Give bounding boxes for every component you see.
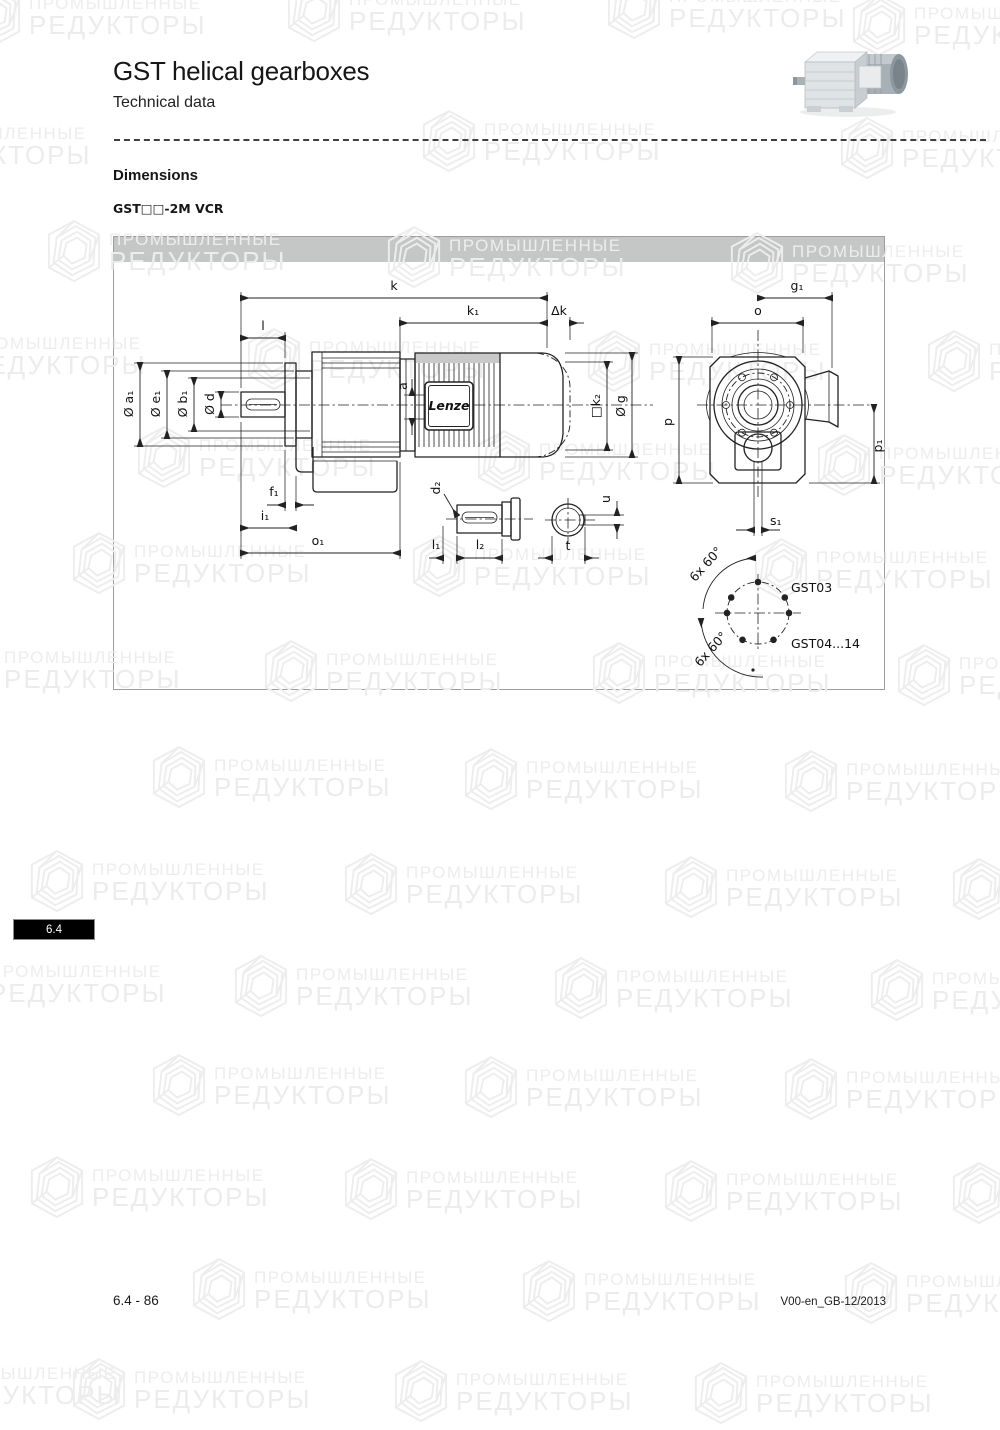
gearbox-sump xyxy=(313,461,397,492)
page-subtitle: Technical data xyxy=(113,94,215,112)
shaft-adapter xyxy=(296,371,312,438)
dim-label-de1: Ø e₁ xyxy=(148,391,163,418)
dim-label-u: u xyxy=(598,495,613,503)
dim-label-o: o xyxy=(754,303,762,318)
dim-label-a: a xyxy=(395,382,410,390)
footer-page-number: 6.4 - 86 xyxy=(113,1293,159,1308)
dim-label-g1: g₁ xyxy=(791,278,804,293)
dim-label-o1: o₁ xyxy=(312,533,325,548)
bolt-label-gst04: GST04...14 xyxy=(791,636,860,651)
bolt-label-gst03: GST03 xyxy=(791,580,832,595)
dashed-separator xyxy=(114,139,986,141)
shaft-flange xyxy=(285,363,296,446)
dimension-drawing: Lenze k k₁ Δk l a Ø a₁ xyxy=(113,236,885,690)
dim-label-dk: Δk xyxy=(551,303,568,318)
dim-label-d2: d₂ xyxy=(428,482,443,495)
product-photo xyxy=(793,40,918,120)
bolt-note-bottom: 6x 60° xyxy=(691,629,730,670)
dim-label-db1: Ø b₁ xyxy=(175,391,190,418)
variant-label: GST□□-2M VCR xyxy=(113,201,224,216)
dim-label-p1: p₁ xyxy=(870,440,885,453)
dim-label-k2: □k₂ xyxy=(588,394,603,418)
dim-label-k: k xyxy=(390,278,398,293)
dim-label-l1: l₁ xyxy=(432,537,440,552)
section-side-tab: 6.4 xyxy=(13,919,95,940)
gearbox-foot xyxy=(296,438,313,472)
motor-top-strip xyxy=(415,353,500,363)
section-heading: Dimensions xyxy=(113,167,198,184)
dim-label-p: p xyxy=(660,418,675,426)
endview-terminal-box xyxy=(805,371,838,427)
dim-label-da1: Ø a₁ xyxy=(121,391,136,417)
dim-label-k1: k₁ xyxy=(467,303,479,318)
page-title: GST helical gearboxes xyxy=(113,56,369,87)
bolt-note-top: 6x 60° xyxy=(686,544,725,585)
footer-version: V00-en_GB-12/2013 xyxy=(781,1296,887,1308)
dim-label-dg: Ø g xyxy=(613,395,628,417)
dim-label-s1: s₁ xyxy=(770,513,782,528)
dim-label-i1: i₁ xyxy=(261,508,269,523)
dim-label-t: t xyxy=(566,538,571,553)
dim-label-dd: Ø d xyxy=(202,393,217,415)
dim-label-f1: f₁ xyxy=(269,484,278,499)
lenze-logo-text: Lenze xyxy=(428,398,469,413)
dim-label-l2: l₂ xyxy=(476,537,484,552)
dim-label-l: l xyxy=(261,318,264,333)
